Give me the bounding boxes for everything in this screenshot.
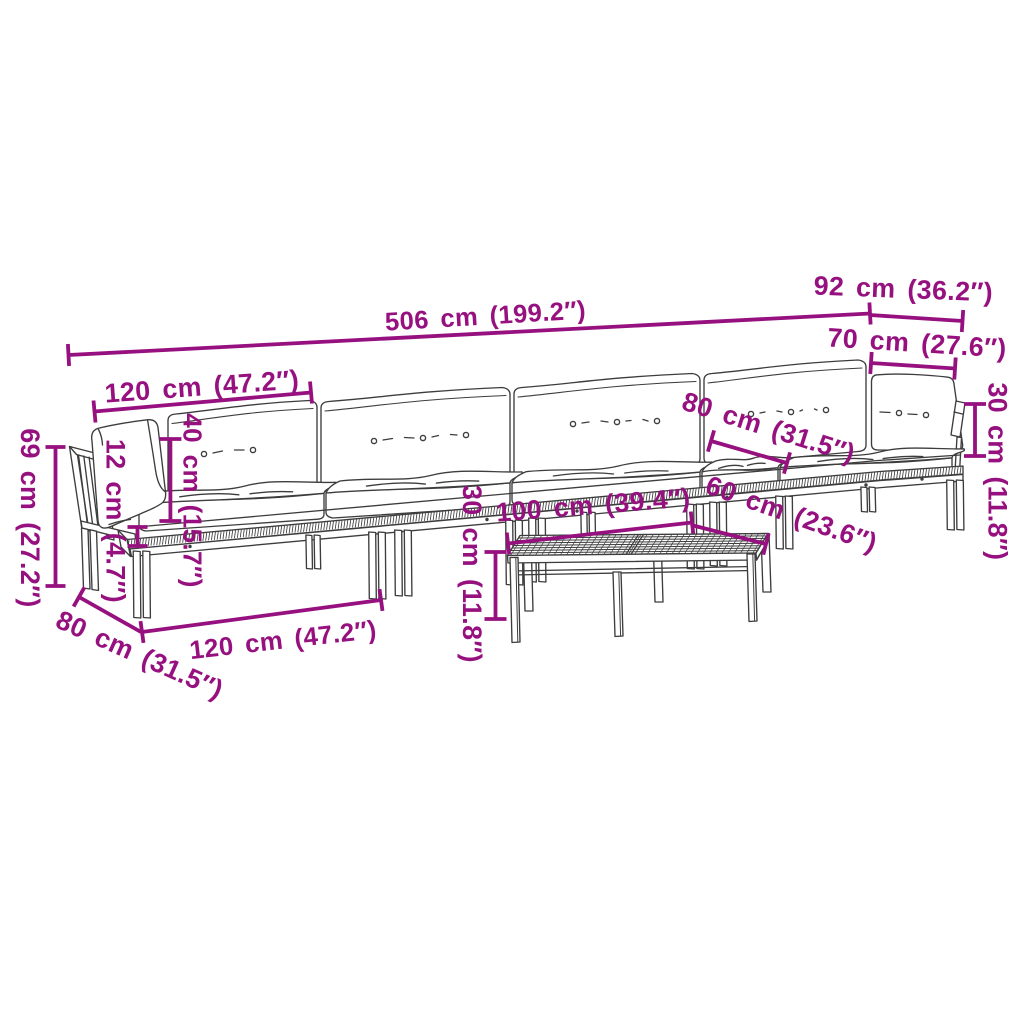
svg-text:69 cm (27.2″): 69 cm (27.2″) [15,428,45,607]
svg-text:40 cm (15.7″): 40 cm (15.7″) [178,413,208,588]
svg-text:30 cm (11.8″): 30 cm (11.8″) [457,485,487,663]
svg-text:30 cm (11.8″): 30 cm (11.8″) [983,383,1013,561]
svg-text:12 cm (4.7″): 12 cm (4.7″) [101,439,131,603]
